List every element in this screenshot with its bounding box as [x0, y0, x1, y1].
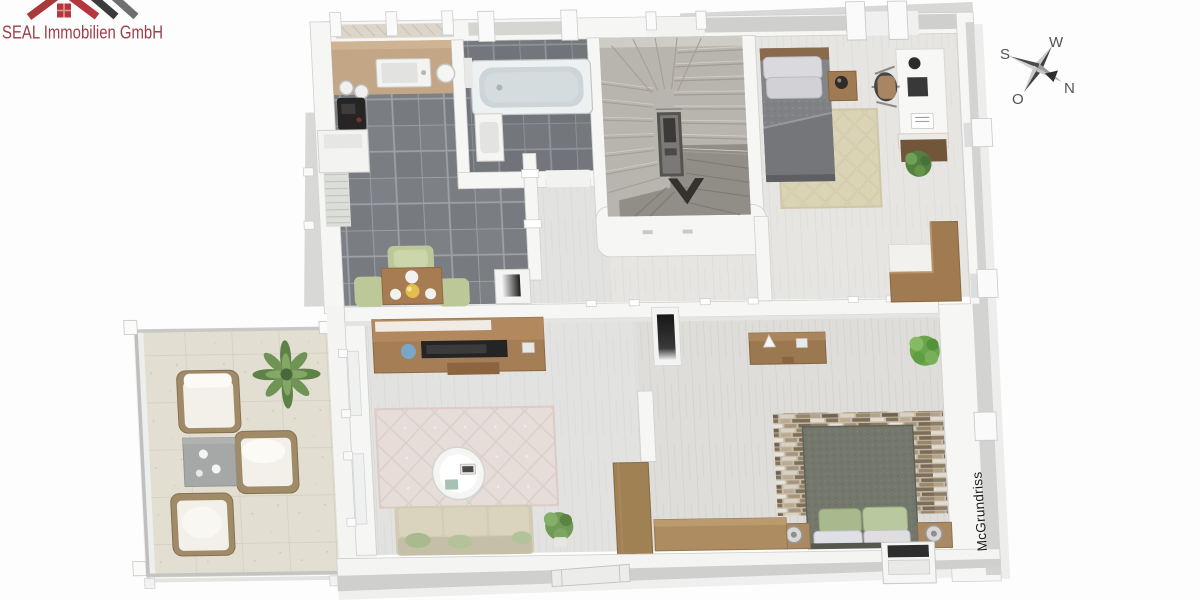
svg-text:S: S: [1000, 46, 1010, 63]
svg-text:O: O: [1012, 91, 1024, 108]
svg-text:SEAL Immobilien GmbH: SEAL Immobilien GmbH: [2, 23, 163, 43]
svg-text:W: W: [1049, 34, 1064, 51]
svg-text:N: N: [1064, 80, 1075, 97]
